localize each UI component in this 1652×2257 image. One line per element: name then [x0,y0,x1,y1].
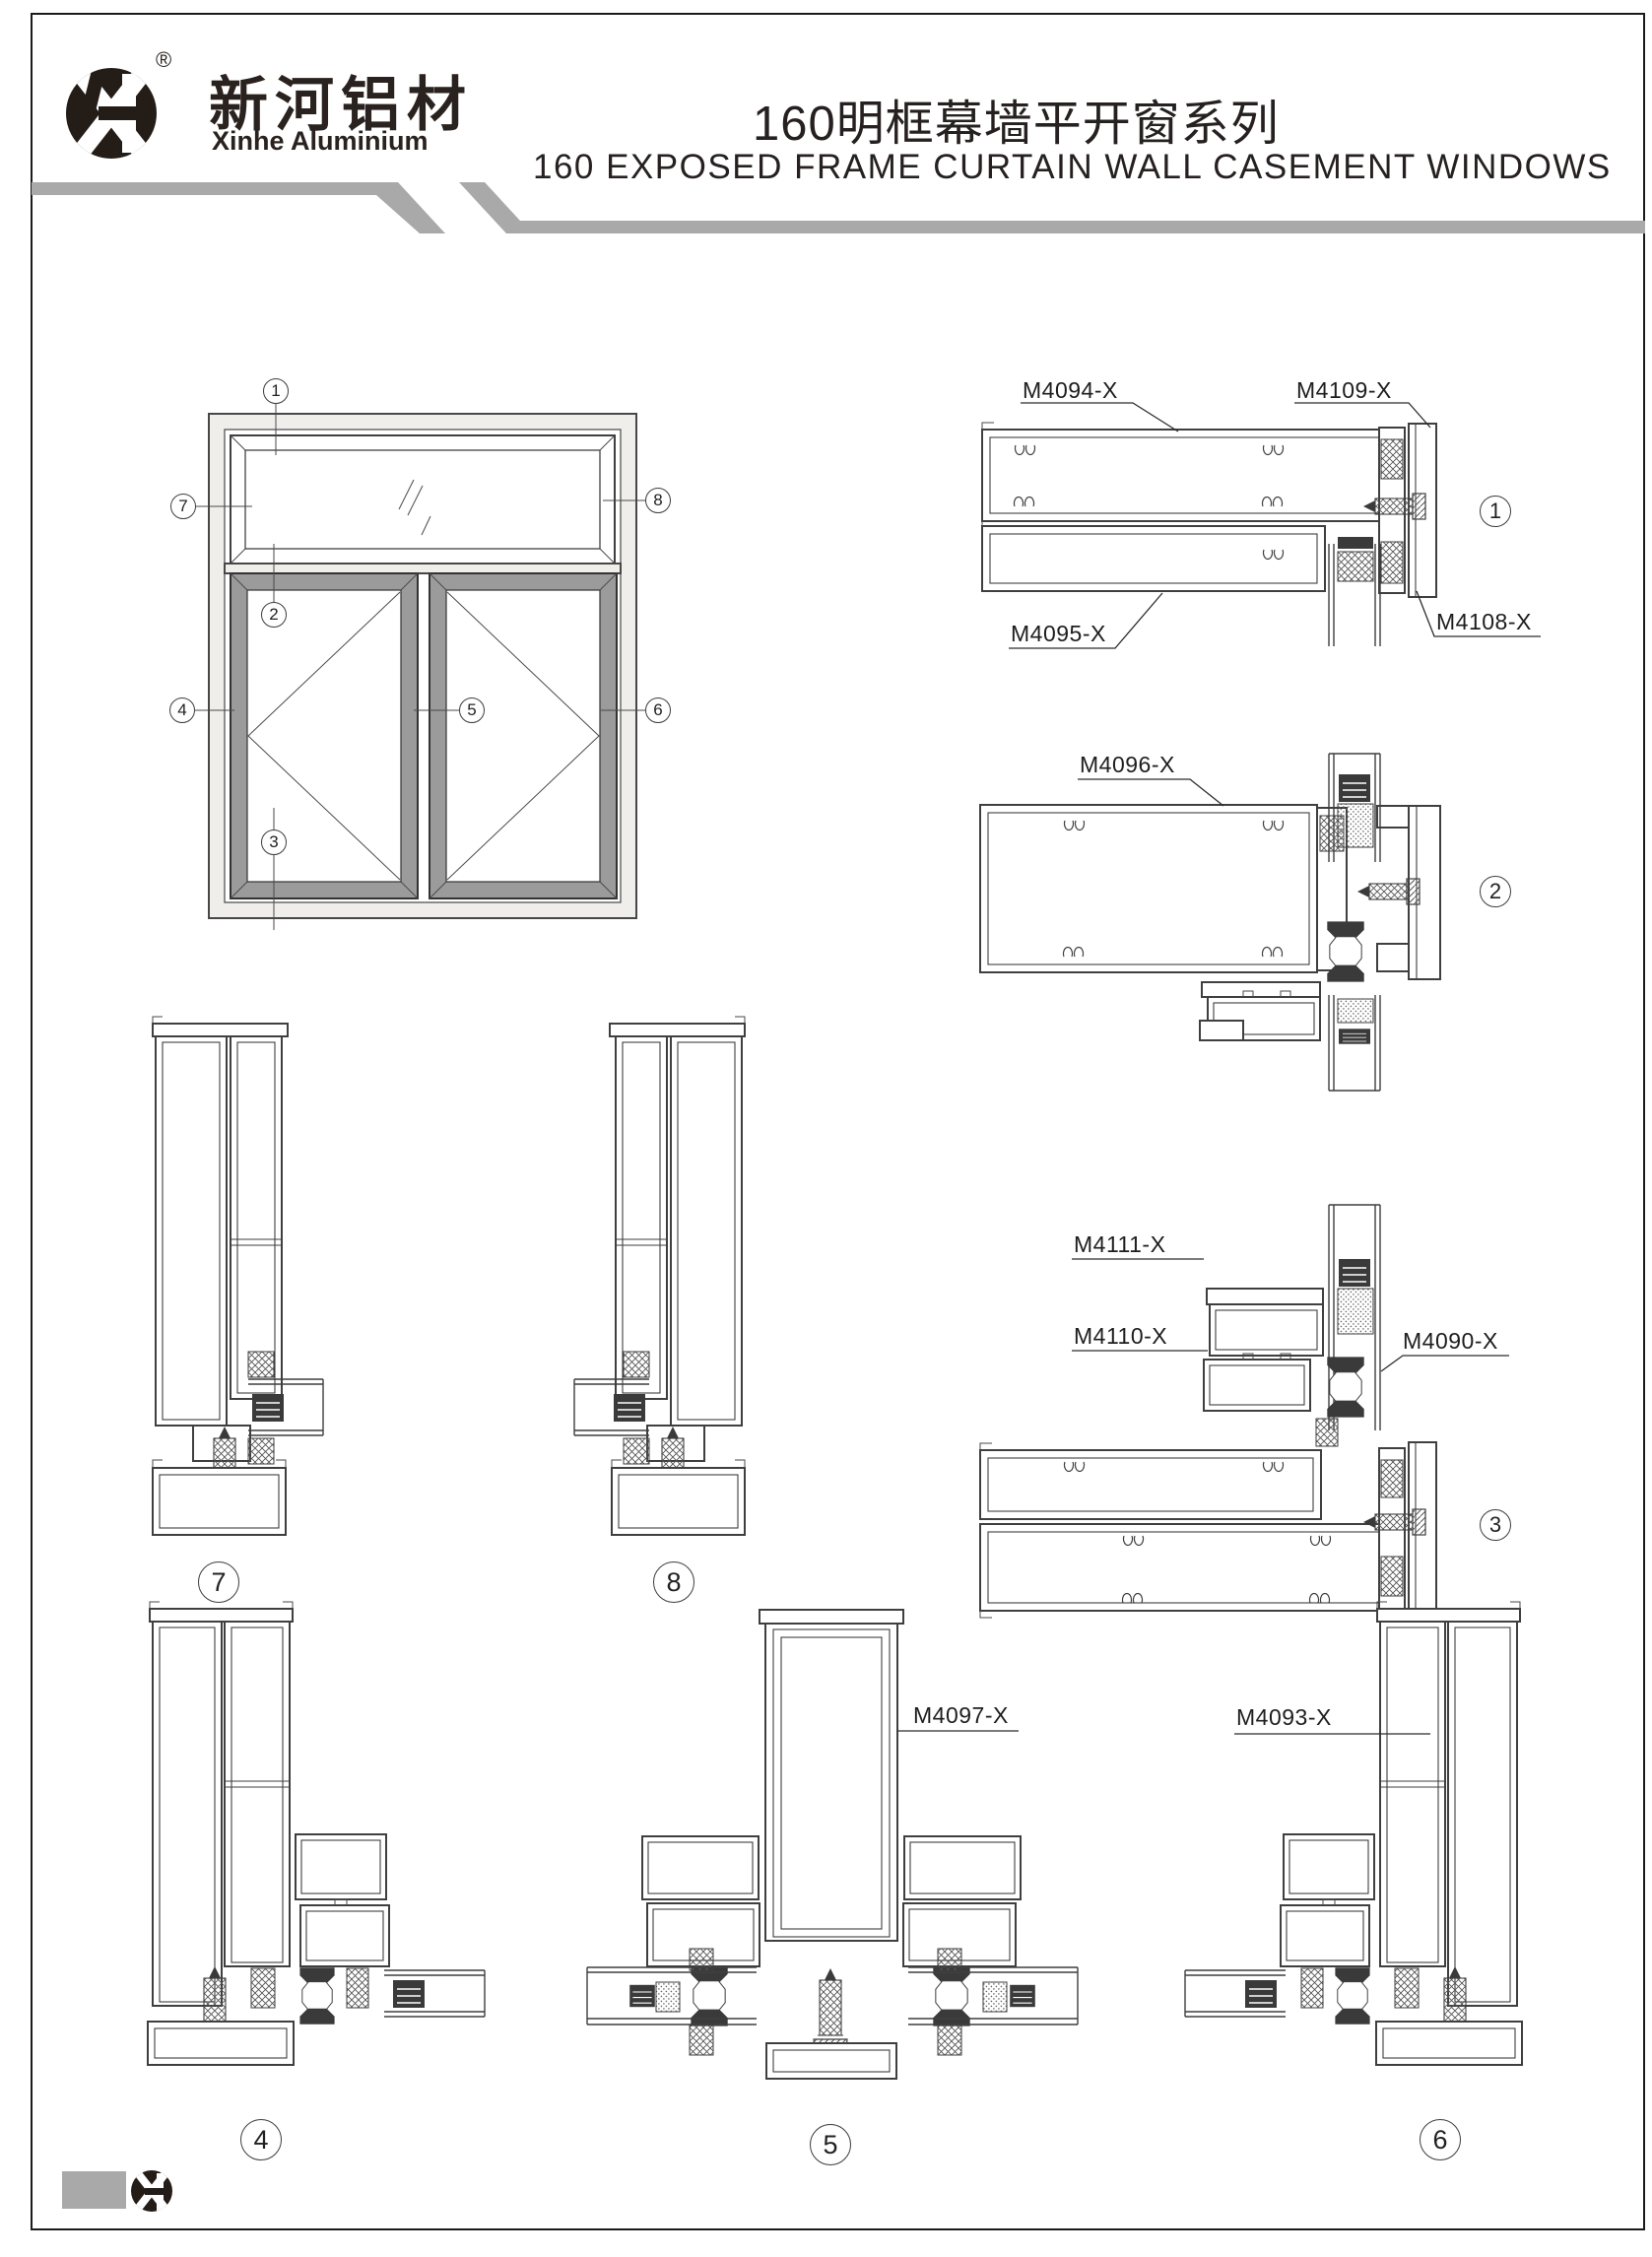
part-label-m4108: M4108-X [1436,609,1532,635]
xh-logo-icon [66,61,157,166]
brand-name-english: Xinhe Aluminium [212,126,429,157]
detail-marker-8: 8 [653,1561,694,1603]
page-title-chinese: 160明框幕墙平开窗系列 [753,85,1280,155]
detail-marker-3: 3 [1480,1509,1511,1541]
section-4-drawing [148,1602,485,2065]
elevation-callout-4: 4 [169,697,195,723]
footer-gray-square [62,2171,126,2209]
catalog-page: ® 新河铝材 Xinhe Aluminium 160明框幕墙平开窗系列 160 … [0,0,1652,2257]
detail-marker-4: 4 [240,2119,282,2160]
part-label-m4110: M4110-X [1074,1323,1167,1350]
part-label-m4109: M4109-X [1296,377,1392,404]
detail-2-section [980,754,1440,1091]
registered-trademark-icon: ® [156,47,171,73]
elevation-callout-1: 1 [263,378,289,404]
window-elevation [195,404,645,930]
section-6-drawing [1185,1602,1522,2065]
detail-marker-6: 6 [1420,2119,1461,2160]
detail-3-section [980,1205,1436,1618]
section-7-drawing [153,1017,323,1535]
detail-marker-1: 1 [1480,496,1511,527]
decorative-stripes [32,182,1645,233]
part-label-m4093: M4093-X [1236,1704,1332,1731]
page-title-english: 160 EXPOSED FRAME CURTAIN WALL CASEMENT … [533,148,1612,187]
part-label-m4094: M4094-X [1023,377,1118,404]
detail-marker-2: 2 [1480,876,1511,907]
elevation-callout-3: 3 [261,830,287,855]
elevation-callout-2: 2 [261,602,287,628]
elevation-callout-8: 8 [645,488,671,513]
section-5-drawing [587,1610,1078,2079]
detail-marker-7: 7 [198,1561,239,1603]
section-8-drawing [574,1017,745,1535]
detail-marker-5: 5 [810,2124,851,2165]
part-label-m4090: M4090-X [1403,1328,1498,1355]
technical-drawing-canvas [0,0,1652,2257]
part-label-m4095: M4095-X [1011,621,1106,647]
footer-block [62,2166,172,2215]
elevation-callout-5: 5 [459,697,485,723]
elevation-callout-6: 6 [645,697,671,723]
elevation-callout-7: 7 [170,494,196,519]
detail-1-section [982,423,1436,646]
part-label-m4096: M4096-X [1080,752,1175,778]
part-label-m4111: M4111-X [1074,1231,1165,1258]
part-label-m4097: M4097-X [913,1702,1009,1729]
